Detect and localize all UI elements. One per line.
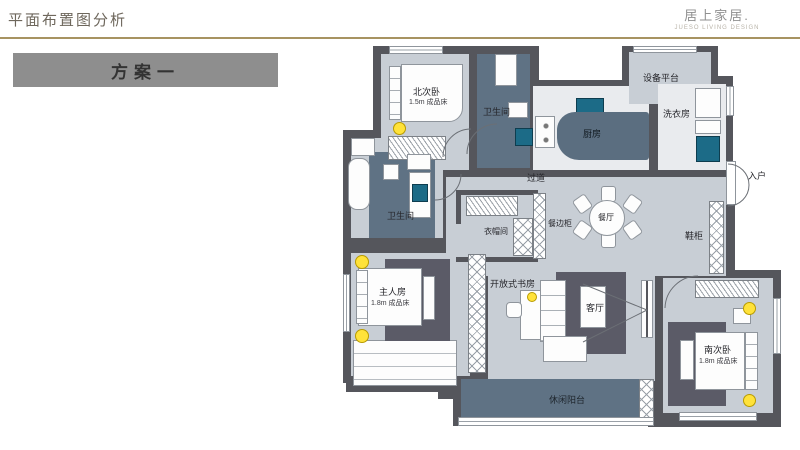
south-bedroom-sub: 1.8m 成品床 <box>699 358 738 365</box>
laundry-label: 洗衣房 <box>663 110 690 119</box>
shower-head <box>383 164 399 180</box>
scheme-label: 方案一 <box>111 58 180 83</box>
cloakroom-wall-left <box>456 190 461 224</box>
bath-top-toilet <box>495 54 517 86</box>
south-bed-side-table <box>745 332 758 390</box>
scheme-label-box: 方案一 <box>13 53 278 87</box>
master-wardrobe <box>468 254 486 373</box>
entry-door-opening <box>726 161 736 205</box>
brand-name: 居上家居. <box>662 5 772 24</box>
master-lamp-icon <box>355 255 369 269</box>
corridor-label: 过道 <box>527 174 545 183</box>
kitchen-counter <box>557 112 649 160</box>
south-wardrobe <box>695 280 759 298</box>
north-bedroom-sub: 1.5m 成品床 <box>409 99 448 106</box>
bath-top-label: 卫生间 <box>483 108 510 117</box>
window-equipment <box>633 46 697 53</box>
kitchen-stove <box>535 116 555 148</box>
bay-window <box>353 340 457 386</box>
window-south-right <box>773 298 781 354</box>
master-bedroom-label: 主人房 <box>379 288 406 297</box>
south-bedroom-label: 南次卧 <box>704 346 731 355</box>
window-north <box>389 46 443 54</box>
brand-subtitle: JUESO LIVING DESIGN <box>662 25 772 31</box>
kitchen-label: 厨房 <box>583 130 601 139</box>
living-label: 客厅 <box>586 304 604 313</box>
page-title: 平面布置图分析 <box>8 9 127 30</box>
bath-top-basin <box>515 128 533 146</box>
window-laundry <box>726 86 734 116</box>
study-chair <box>506 302 522 318</box>
master-bed-side-table <box>356 270 368 324</box>
shoe-cabinet-label: 鞋柜 <box>685 232 703 241</box>
cloakroom-wall-top <box>456 190 538 195</box>
sideboard-label: 餐边柜 <box>548 220 572 228</box>
sofa-chaise <box>543 336 587 362</box>
dining-label: 餐厅 <box>598 214 614 222</box>
window-south <box>679 412 757 421</box>
floor-plan: 北次卧 1.5m 成品床 卫生间 厨房 设备平台 洗衣房 入户 鞋柜 过道 餐厅… <box>343 46 799 446</box>
bath-left-basin <box>412 184 428 202</box>
window-balcony <box>458 417 654 426</box>
brand-logo: 居上家居. JUESO LIVING DESIGN <box>662 5 772 31</box>
header-divider <box>0 37 800 39</box>
study-label: 开放式书房 <box>490 280 535 289</box>
south-lamp-icon <box>743 394 756 407</box>
balcony-label: 休闲阳台 <box>549 396 585 405</box>
laundry-shelf <box>695 120 721 134</box>
laundry-washer <box>695 88 721 118</box>
laundry-sink <box>696 136 720 162</box>
bath-left-label: 卫生间 <box>387 212 414 221</box>
shoe-cabinet <box>709 201 724 274</box>
entry-label: 入户 <box>748 172 766 181</box>
cloakroom-label: 衣帽间 <box>484 228 508 236</box>
sofa-long <box>540 280 566 342</box>
study-lamp-icon <box>527 292 537 302</box>
south-tv-cabinet <box>680 340 694 380</box>
cloakroom-closet-top <box>466 196 518 216</box>
bath-left-toilet <box>407 154 431 170</box>
north-bedroom-label: 北次卧 <box>413 88 440 97</box>
north-lamp-icon <box>393 122 406 135</box>
tv-unit <box>641 280 653 338</box>
master-bedroom-sub: 1.8m 成品床 <box>371 300 410 307</box>
bath-top-shelf <box>508 102 528 118</box>
sideboard-cabinet <box>533 193 546 259</box>
south-lamp-icon <box>743 302 756 315</box>
north-bed-side-table <box>389 66 401 120</box>
balcony-column <box>639 379 654 418</box>
window-master-left <box>343 274 350 332</box>
cloakroom-closet-side <box>513 218 533 256</box>
master-bench <box>423 276 435 320</box>
bathtub <box>348 158 370 210</box>
bath-left-washer <box>351 138 375 156</box>
equipment-platform-label: 设备平台 <box>643 74 679 83</box>
master-lamp-icon <box>355 329 369 343</box>
